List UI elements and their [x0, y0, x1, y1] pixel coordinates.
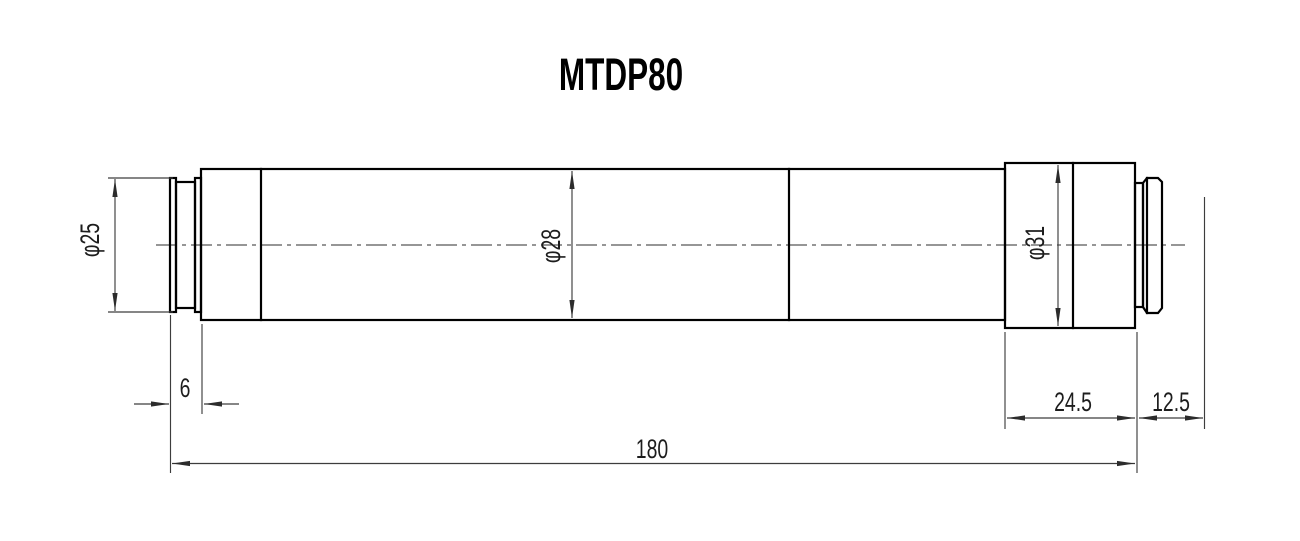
dim-245-label: 24.5 [1054, 387, 1092, 417]
dim-d31-label: φ31 [1020, 226, 1050, 260]
drawing-title: MTDP80 [559, 51, 683, 101]
dim-d28-label: φ28 [536, 229, 566, 263]
dim-125-label: 12.5 [1152, 387, 1190, 417]
technical-drawing: MTDP80 φ25 φ28 [0, 0, 1300, 541]
drawing-sheet: MTDP80 φ25 φ28 [0, 0, 1300, 541]
dim-6-label: 6 [180, 373, 191, 403]
dim-d25-label: φ25 [75, 223, 105, 257]
dim-180-label: 180 [636, 434, 668, 464]
